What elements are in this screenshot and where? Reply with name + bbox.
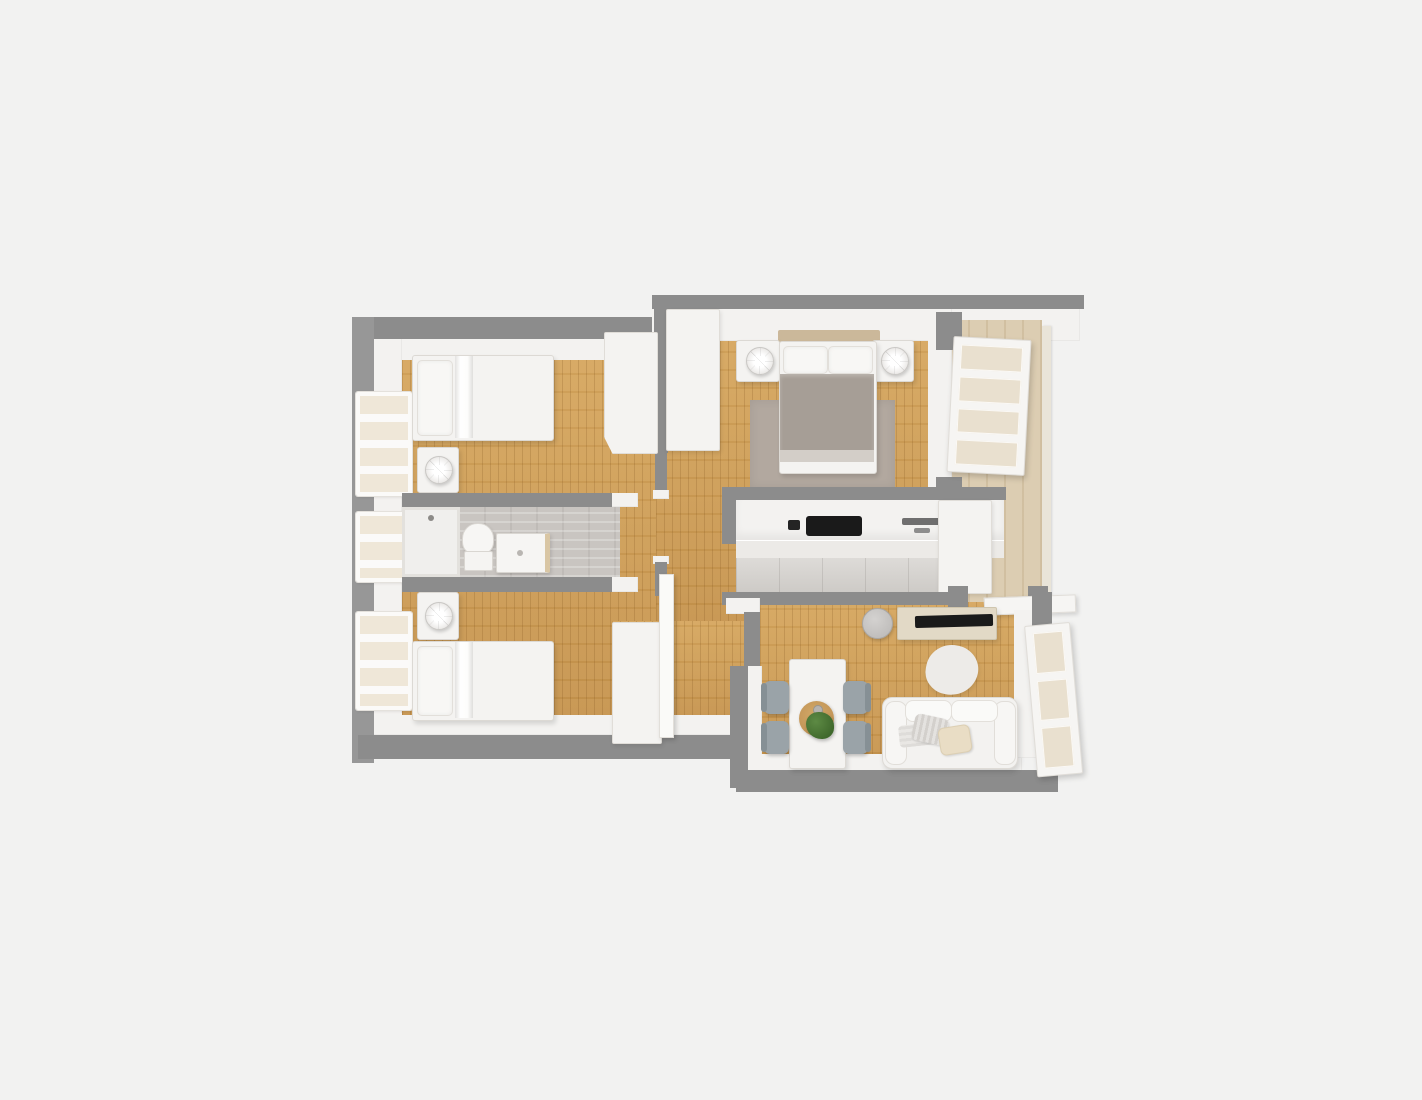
wall-bathroom-bottom [402, 577, 636, 592]
wall-bathroom-top [402, 493, 636, 507]
dining-chair-bottom-left [764, 721, 789, 754]
glass-pane [1041, 726, 1074, 769]
cooktop [806, 516, 862, 536]
dining-chair-top-right [843, 681, 868, 714]
sheet-fold-bedroom1 [455, 356, 473, 438]
glass-door-balcony-upper [946, 336, 1031, 476]
tv-flatscreen [915, 614, 993, 628]
window-bedroom2 [356, 612, 412, 710]
glass-pane [958, 376, 1021, 404]
sheet-fold-bedroom2 [455, 642, 473, 718]
nightstand-bedroom1 [417, 447, 459, 493]
potted-plant [806, 712, 834, 739]
glass-pane [1033, 631, 1066, 674]
table-lamp-bedroom2 [425, 602, 453, 630]
pillow-bedroom1 [417, 360, 453, 436]
glass-pane [957, 408, 1020, 436]
wardrobe-bedroom2 [612, 622, 662, 744]
wall-outer-bottom-left-block [358, 735, 748, 759]
kitchen-sink [902, 518, 942, 525]
wall-outer-top-right-block [652, 295, 1084, 309]
bed-double-master [779, 341, 877, 474]
toilet-tank [464, 551, 493, 571]
shower-bathroom [402, 507, 460, 577]
wall-balcony-outer [1042, 326, 1051, 602]
door-open-bedroom2 [659, 574, 674, 738]
sofa-back-cushion-right [951, 700, 998, 722]
dining-chair-bottom-right [843, 721, 868, 754]
glass-pane [955, 440, 1018, 468]
sink-vanity-bathroom [496, 533, 550, 573]
wall-kitchen-left-cap [722, 500, 736, 544]
shower-drain [428, 515, 434, 521]
nightstand-bedroom2 [417, 592, 459, 640]
wall-cap-bathroom-bottom [612, 577, 638, 592]
glass-pane [960, 344, 1023, 372]
side-table-round [862, 608, 893, 639]
wall-outer-living-bottom [736, 770, 1058, 792]
sofa-pillow-beige [937, 724, 973, 757]
table-lamp-bedroom1 [425, 456, 453, 484]
wall-cap-middle [653, 490, 669, 499]
glass-pane [1037, 678, 1070, 721]
sink-faucet [517, 550, 523, 556]
wall-cap-bathroom-top [612, 493, 638, 507]
table-lamp-master-left [746, 347, 774, 375]
cooktop-控l-knob [788, 520, 800, 530]
kitchen-faucet [914, 528, 930, 533]
pillow-master-right [828, 346, 873, 374]
closet-entry [666, 309, 720, 451]
wall-kitchen-top [722, 487, 1006, 500]
window-bedroom1 [356, 392, 412, 496]
bed-single-bedroom2 [412, 641, 554, 721]
bed-single-bedroom1 [412, 355, 554, 441]
dining-chair-top-left [764, 681, 789, 714]
blanket-master-bed [780, 374, 874, 452]
pillow-bedroom2 [417, 646, 453, 716]
nightstand-master-right [872, 340, 914, 382]
blanket-fold-master-bed [780, 450, 874, 462]
pillow-master-left [783, 346, 828, 374]
table-lamp-master-right [881, 347, 909, 375]
wall-stub-living-left [744, 612, 760, 670]
floor-plan-canvas [0, 0, 1422, 1100]
tv-console [897, 607, 997, 640]
sofa [882, 697, 1018, 769]
floor-tile-kitchen [736, 558, 950, 592]
wardrobe-bedroom1 [604, 332, 658, 454]
fridge-column [938, 500, 992, 594]
nightstand-master-left [736, 340, 780, 382]
